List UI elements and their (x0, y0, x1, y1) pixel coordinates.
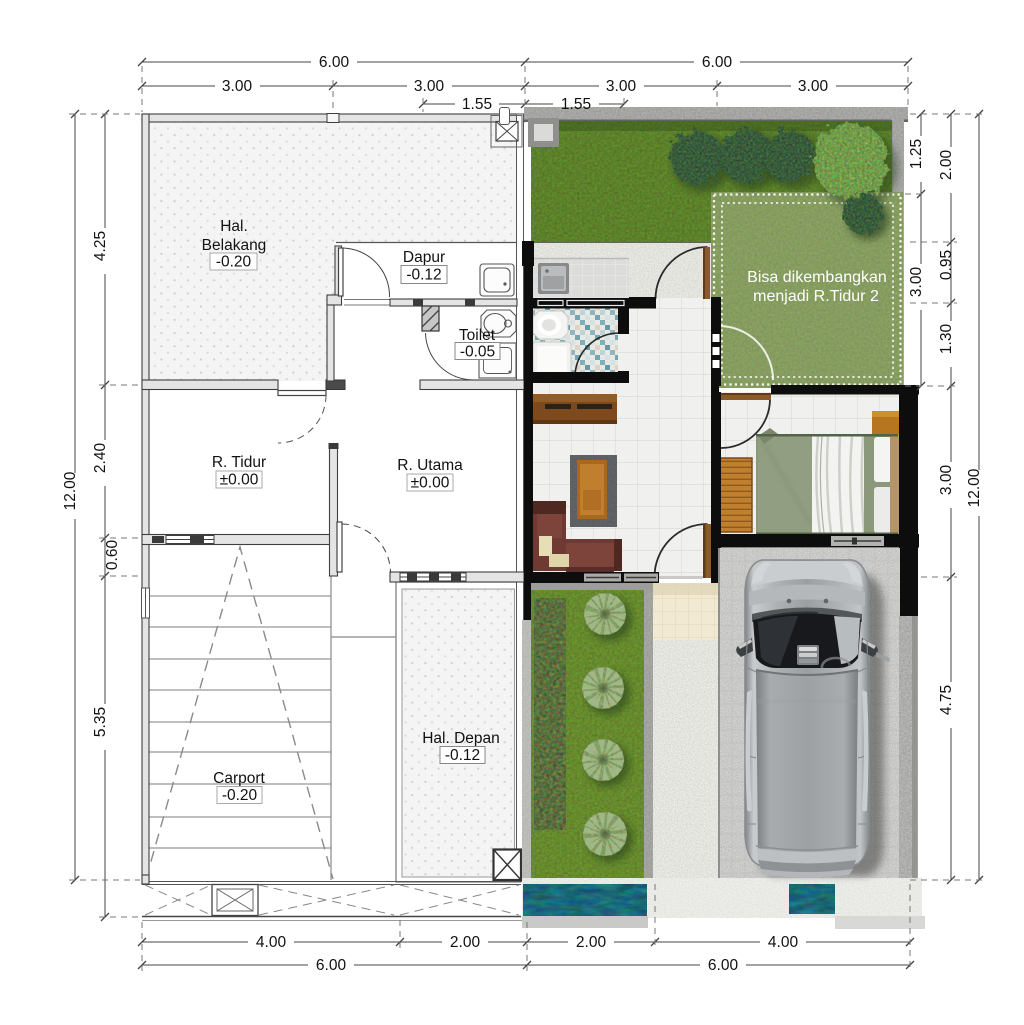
svg-text:3.00: 3.00 (938, 465, 955, 496)
svg-text:4.75: 4.75 (938, 685, 955, 715)
svg-text:Dapur: Dapur (403, 249, 445, 266)
svg-text:1.55: 1.55 (462, 96, 492, 113)
svg-text:R. Utama: R. Utama (397, 457, 463, 474)
svg-text:Toilet: Toilet (459, 327, 496, 344)
svg-text:-0.20: -0.20 (222, 787, 258, 804)
svg-text:±0.00: ±0.00 (220, 472, 259, 489)
svg-text:R. Tidur: R. Tidur (212, 454, 266, 471)
svg-text:-0.12: -0.12 (406, 267, 441, 284)
svg-text:4.00: 4.00 (256, 934, 287, 951)
svg-text:Hal. Depan: Hal. Depan (422, 730, 500, 747)
svg-text:1.25: 1.25 (908, 139, 925, 169)
svg-text:Belakang: Belakang (202, 237, 267, 254)
svg-text:3.00: 3.00 (798, 78, 829, 95)
svg-text:±0.00: ±0.00 (411, 475, 450, 492)
svg-text:12.00: 12.00 (966, 468, 983, 507)
svg-text:1.55: 1.55 (561, 96, 591, 113)
svg-text:12.00: 12.00 (62, 471, 79, 510)
svg-text:5.35: 5.35 (92, 707, 109, 737)
svg-text:4.25: 4.25 (92, 231, 109, 261)
svg-text:0.95: 0.95 (938, 250, 955, 280)
svg-text:menjadi R.Tidur 2: menjadi R.Tidur 2 (753, 288, 879, 305)
svg-text:6.00: 6.00 (319, 54, 350, 71)
svg-text:Bisa dikembangkan: Bisa dikembangkan (747, 269, 887, 286)
svg-text:Hal.: Hal. (220, 218, 248, 235)
svg-text:3.00: 3.00 (606, 78, 637, 95)
svg-text:2.40: 2.40 (92, 443, 109, 474)
svg-text:-0.12: -0.12 (445, 747, 480, 764)
svg-text:2.00: 2.00 (450, 934, 481, 951)
svg-text:6.00: 6.00 (316, 957, 347, 974)
svg-text:1.30: 1.30 (938, 324, 955, 355)
svg-text:6.00: 6.00 (702, 54, 733, 71)
svg-text:3.00: 3.00 (414, 78, 445, 95)
svg-text:3.00: 3.00 (222, 78, 253, 95)
svg-text:3.00: 3.00 (908, 267, 925, 298)
svg-text:-0.20: -0.20 (216, 254, 252, 271)
svg-text:-0.05: -0.05 (460, 344, 495, 361)
svg-text:2.00: 2.00 (576, 934, 607, 951)
svg-text:2.00: 2.00 (938, 150, 955, 181)
svg-text:4.00: 4.00 (768, 934, 799, 951)
svg-text:0.60: 0.60 (104, 540, 121, 571)
svg-text:6.00: 6.00 (708, 957, 739, 974)
svg-text:Carport: Carport (213, 770, 265, 787)
